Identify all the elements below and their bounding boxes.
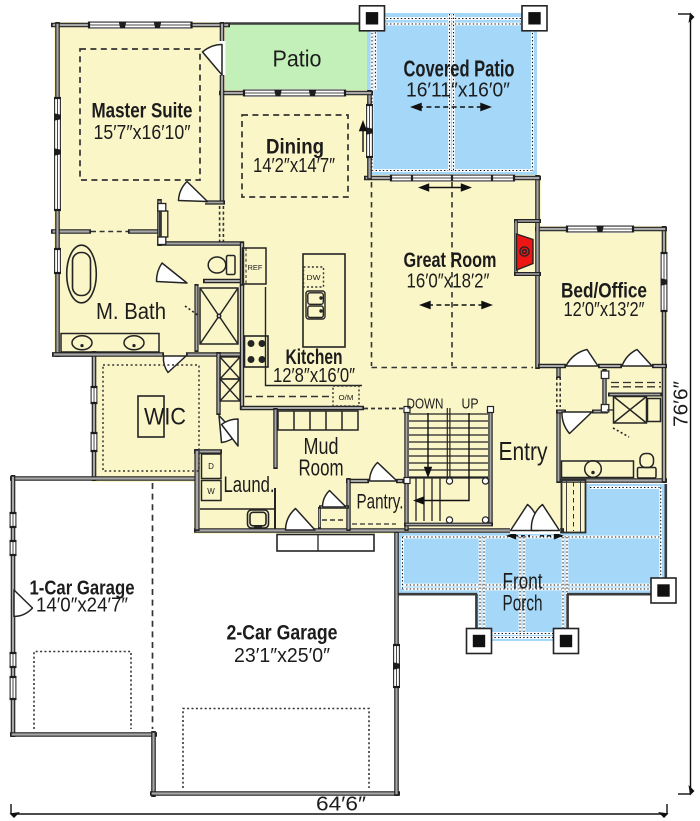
svg-text:16′11″x16′0″: 16′11″x16′0″ (406, 79, 510, 102)
svg-text:Entry: Entry (499, 436, 548, 466)
svg-text:16′0″x18′2″: 16′0″x18′2″ (407, 270, 490, 293)
svg-text:23′1″x25′0″: 23′1″x25′0″ (234, 644, 330, 667)
svg-text:W: W (207, 487, 215, 496)
svg-text:64′6″: 64′6″ (316, 794, 366, 816)
svg-text:Patio: Patio (273, 46, 322, 72)
svg-text:DOWN: DOWN (407, 396, 444, 413)
svg-text:Great Room: Great Room (404, 248, 497, 272)
svg-text:Room: Room (299, 455, 344, 481)
svg-text:Pantry.: Pantry. (357, 491, 404, 514)
svg-text:Porch: Porch (503, 591, 543, 616)
svg-text:2-Car Garage: 2-Car Garage (227, 622, 338, 645)
svg-text:O/M: O/M (339, 393, 354, 402)
svg-text:15′7″x16′10″: 15′7″x16′10″ (94, 121, 191, 144)
svg-text:D: D (208, 462, 214, 471)
svg-text:DW: DW (307, 273, 322, 282)
svg-text:Master Suite: Master Suite (92, 99, 193, 123)
svg-text:REF: REF (248, 263, 263, 272)
svg-text:12′8″x16′0″: 12′8″x16′0″ (273, 364, 355, 387)
svg-text:14′2″x14′7″: 14′2″x14′7″ (253, 154, 335, 177)
svg-text:76′6″: 76′6″ (671, 381, 693, 427)
svg-text:Laund.: Laund. (224, 472, 275, 497)
svg-text:14′0″x24′7″: 14′0″x24′7″ (36, 595, 128, 617)
svg-text:WIC: WIC (144, 404, 186, 431)
svg-text:12′0″x13′2″: 12′0″x13′2″ (564, 298, 645, 321)
svg-text:UP: UP (462, 396, 479, 413)
svg-text:M. Bath: M. Bath (96, 298, 166, 324)
